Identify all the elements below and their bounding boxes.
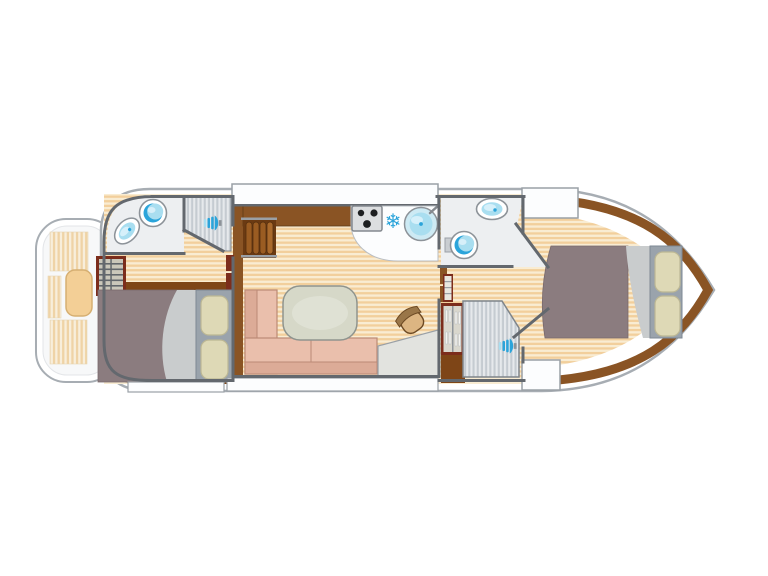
side-deck-panel bbox=[227, 378, 438, 391]
stern-deck-panel bbox=[50, 232, 88, 271]
pillow bbox=[655, 252, 680, 292]
freezer-icon: ❄ bbox=[385, 209, 402, 233]
coachroof-panel bbox=[232, 184, 438, 205]
fwd-cabinet-base bbox=[441, 352, 465, 383]
pillow bbox=[201, 340, 228, 379]
bow-bed-blanket bbox=[542, 246, 628, 338]
saloon-table bbox=[283, 286, 357, 340]
toilet-icon bbox=[140, 200, 167, 227]
fwd-mini-shelf bbox=[443, 274, 453, 302]
boat-floorplan: ❄ bbox=[0, 0, 768, 576]
pillow bbox=[655, 296, 680, 336]
pillow bbox=[201, 296, 228, 335]
bow-bed bbox=[542, 246, 682, 338]
floorplan-canvas: ❄ bbox=[0, 0, 768, 576]
bow-deck-panel bbox=[522, 360, 560, 390]
toilet-icon bbox=[451, 232, 478, 259]
sink-icon bbox=[477, 199, 508, 220]
stern-deck-panel bbox=[48, 276, 61, 318]
stern-deck-panel bbox=[50, 320, 87, 364]
bow-deck-panel bbox=[522, 188, 578, 218]
side-deck-panel bbox=[128, 382, 224, 392]
aft-bed bbox=[98, 290, 232, 382]
companionway-steps bbox=[241, 218, 277, 259]
stern-seat bbox=[66, 270, 92, 316]
